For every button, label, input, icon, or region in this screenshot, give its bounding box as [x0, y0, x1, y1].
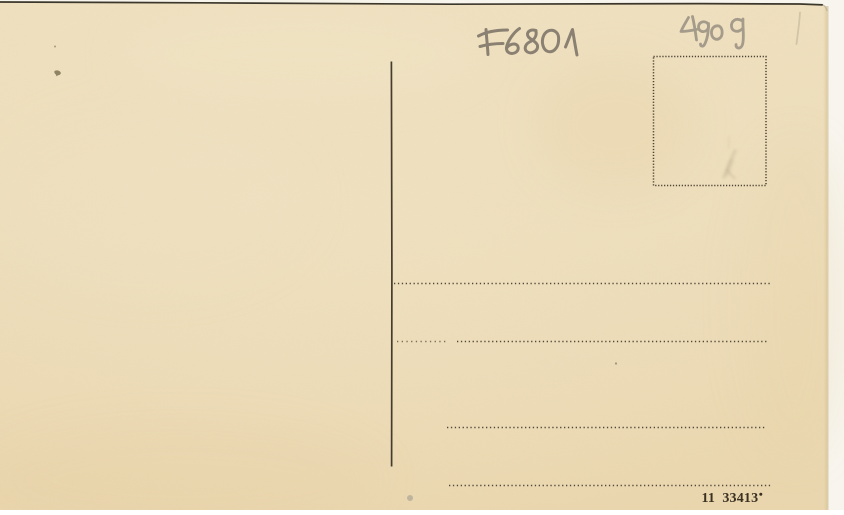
svg-text:11 33413: 11 33413 [702, 491, 759, 506]
